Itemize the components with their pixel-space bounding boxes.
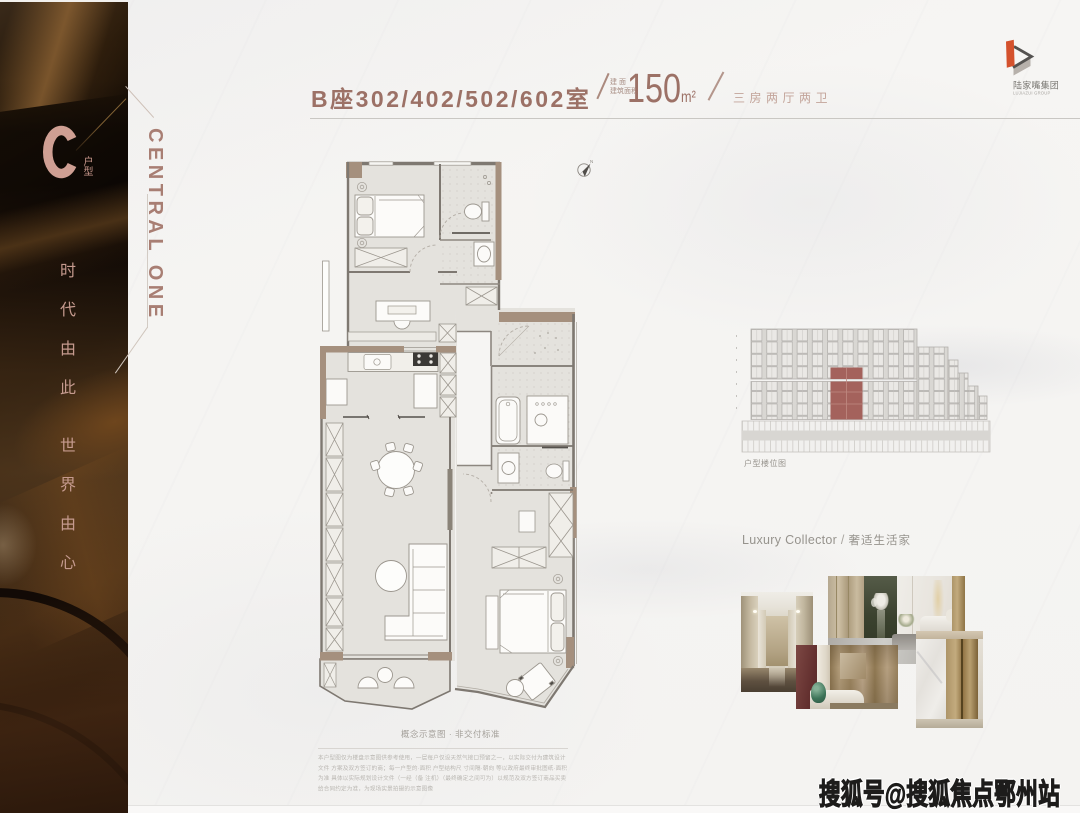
svg-text:LUJIAZUI GROUP: LUJIAZUI GROUP bbox=[1013, 91, 1050, 96]
svg-text:N: N bbox=[590, 159, 593, 164]
svg-text:陆家嘴集团: 陆家嘴集团 bbox=[1013, 80, 1059, 91]
